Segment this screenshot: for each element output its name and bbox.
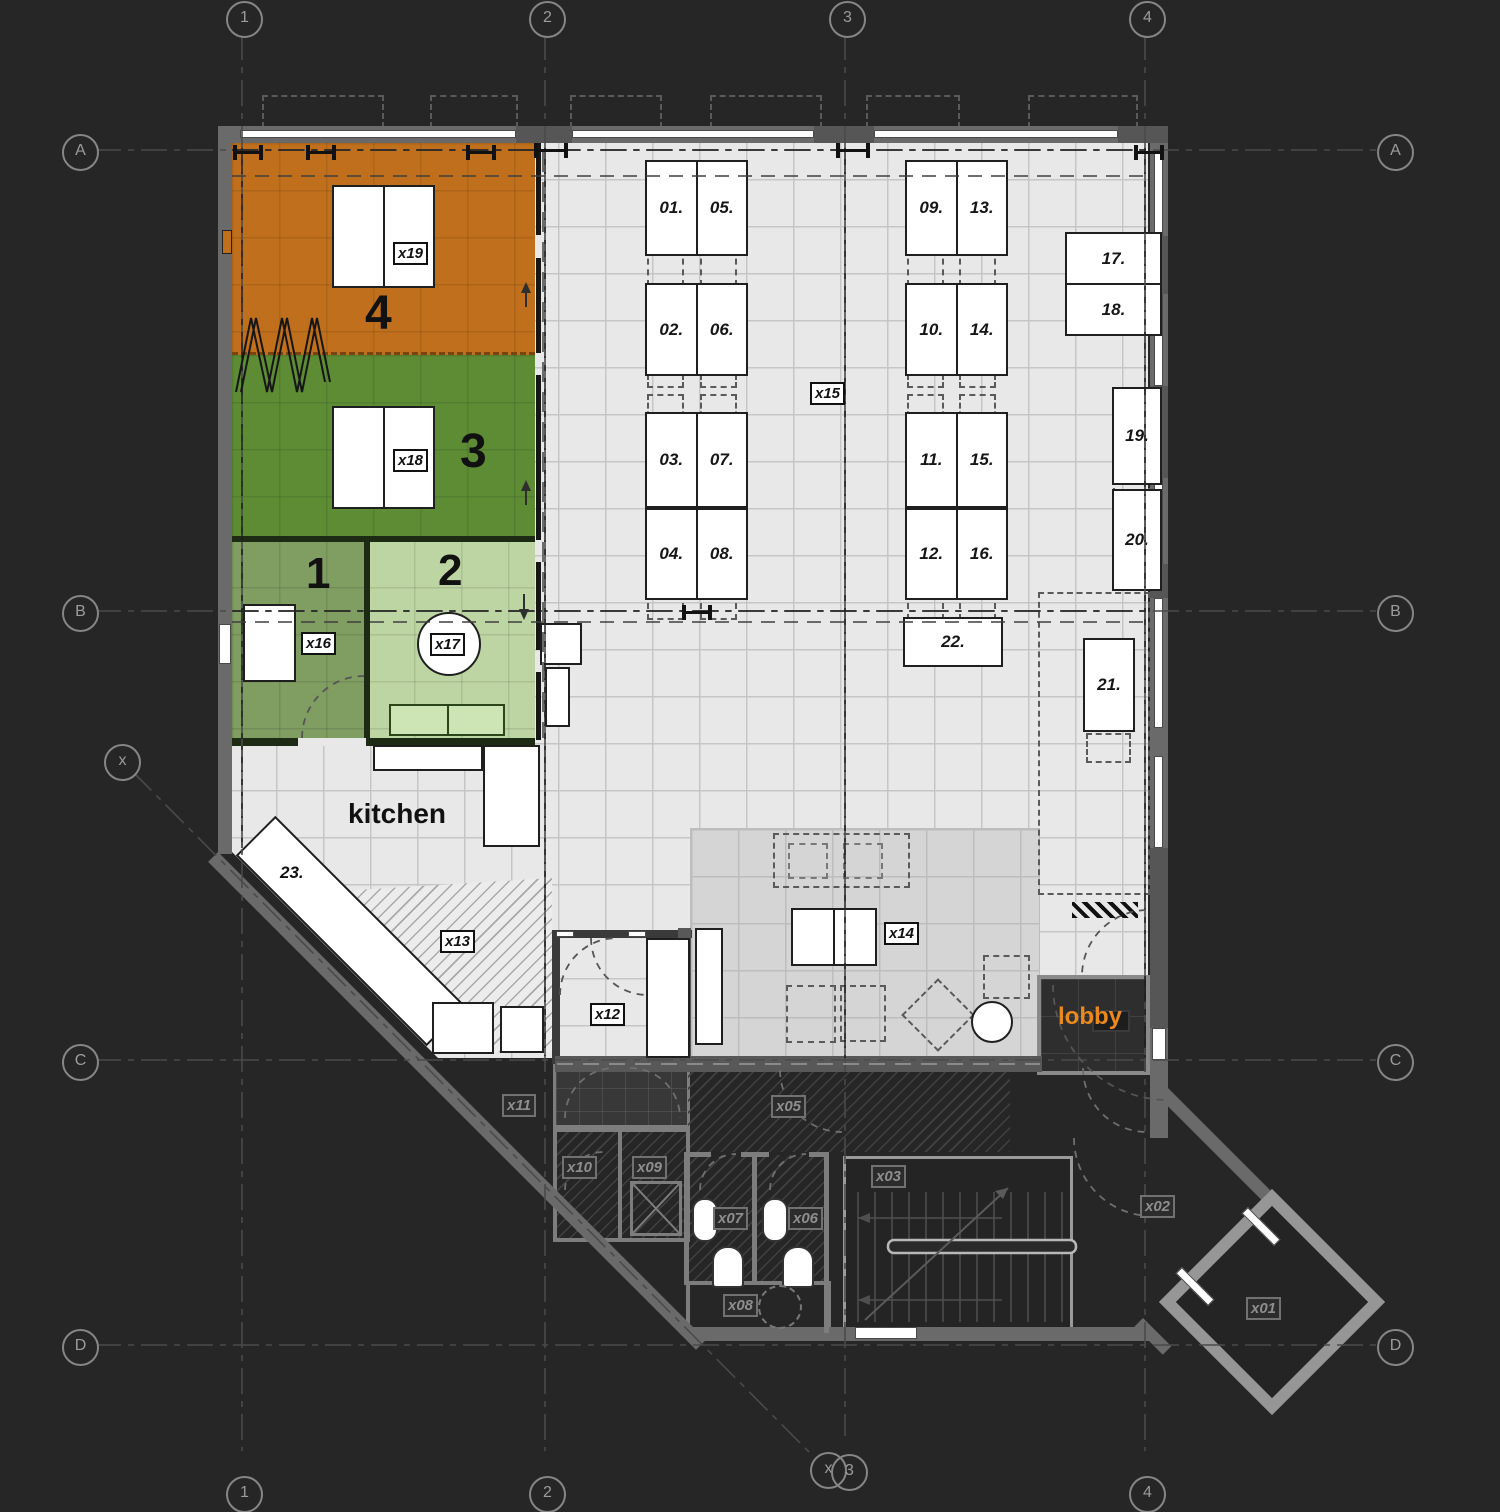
pier-top-a [516,126,572,143]
grid-row-d-left: D [62,1329,99,1366]
rooms-row-wall [232,536,535,542]
lounge-side-cabinet [695,928,723,1045]
stair-bottom-window [855,1327,917,1339]
planter-5 [866,95,960,128]
cabinet-a [540,623,582,665]
grid-col-1-bottom: 1 [226,1476,263,1512]
window-right-1 [1154,150,1163,236]
planter-1 [262,95,384,128]
sink [762,1198,788,1242]
grid-row-a-right: A [1377,134,1414,171]
lounge-pouf [971,1001,1013,1043]
grid-aux-x-left: x [104,744,141,781]
grid-row-c-right: C [1377,1044,1414,1081]
stall-top-seg2 [741,1152,769,1157]
mullion-mark [1134,145,1164,160]
room1-2-divider [364,540,370,742]
planter-2 [430,95,518,128]
window-right-5 [1154,756,1163,848]
planter-4 [710,95,822,128]
shaft-x09 [630,1181,682,1236]
room-1-number: 1 [306,552,330,596]
window-top-3 [874,130,1118,138]
tag-x19: x19 [393,242,428,265]
desk-block-04-08: 04.08. [645,508,748,600]
left-wall-orange-tab [222,230,232,254]
room-4-3-divider [232,352,535,355]
desk-21: 21. [1083,638,1135,732]
tag-x08: x08 [723,1294,758,1317]
desk-block-01-05: 01.05. [645,160,748,256]
kitchen-counter-v [483,745,540,847]
desk-18: 18. [1067,283,1160,334]
tag-x18: x18 [393,449,428,472]
lounge-armchair-1 [786,985,836,1043]
floor-plan: 01.05. 02.06. 03.07. 04.08. 09.13. 10.14… [0,0,1500,1512]
grid-col-2-bottom: 2 [529,1476,566,1512]
desk-22: 22. [903,617,1003,667]
desk-19: 19. [1112,387,1162,485]
window-right-lobby [1152,1028,1166,1060]
tag-x17: x17 [430,633,465,656]
glass-wall-seg3 [536,375,541,540]
room-2-number: 2 [438,549,462,593]
kitchen-counter-h [373,745,483,771]
kitchen-island-b [500,1006,544,1053]
toilet [712,1246,744,1288]
desk-08: 08. [696,510,747,598]
grid-row-c-left: C [62,1044,99,1081]
x12-door-jamb-2 [628,931,646,937]
room1-desk [243,604,296,682]
mullion-mark [233,145,263,160]
coffee-table [791,908,877,966]
lounge-sofa-seat-2 [843,843,883,879]
grid-col-3-top: 3 [829,1,866,38]
room-4-number: 4 [365,290,392,338]
pier-right-4 [1150,848,1168,1028]
x08-floor-drain [758,1285,802,1329]
desk-15: 15. [956,414,1007,506]
tag-x05: x05 [771,1095,806,1118]
desk-block-09-13: 09.13. [905,160,1008,256]
desk-11: 11. [907,414,956,506]
x10-x09-divider [618,1128,622,1242]
tag-x03: x03 [871,1165,906,1188]
stall-top-seg1 [689,1152,711,1157]
window-top-2 [572,130,814,138]
counter-23-label: 23. [280,864,304,881]
x12-left-wall [552,930,560,1064]
desk-09: 09. [907,162,956,254]
mullion-mark [836,143,870,158]
desk-block-11-15: 11.15. [905,412,1008,508]
grid-col-3-bottom: 3 [831,1454,868,1491]
stall-wall-right [824,1152,829,1333]
window-top-1 [240,130,516,138]
desk-16: 16. [956,510,1007,598]
tag-x14: x14 [884,922,919,945]
pier-top-b [814,126,874,143]
tag-x09: x09 [632,1156,667,1179]
kitchen-island-a [432,1002,494,1054]
lounge-sofa-seat-1 [788,843,828,879]
x12-cabinet [646,938,690,1058]
desk-13: 13. [956,162,1007,254]
desk-04: 04. [647,510,696,598]
tag-x12: x12 [590,1003,625,1026]
mullion-mark [466,145,496,160]
desk-20: 20. [1112,489,1162,591]
under-lounge-wall [555,1056,1042,1072]
window-right-4 [1154,598,1163,728]
tag-x13: x13 [440,930,475,953]
room-3-number: 3 [460,428,487,476]
mullion-mark [306,145,336,160]
bath-corridor-x05 [688,1066,1010,1152]
desk-12: 12. [907,510,956,598]
tag-x11: x11 [502,1094,536,1117]
room1-door-opening [298,738,366,746]
cabinet-b [545,667,570,727]
tag-x02: x02 [1140,1195,1175,1218]
desk-05: 05. [696,162,747,254]
bottom-wall [690,1327,1150,1341]
desk-block-10-14: 10.14. [905,283,1008,376]
glass-wall-seg5 [536,672,541,740]
tag-x01: x01 [1246,1297,1281,1320]
lounge-armchair-2 [840,985,886,1042]
grid-row-b-right: B [1377,595,1414,632]
entry-mat [1072,902,1138,918]
toilet [782,1246,814,1288]
desk-block-12-16: 12.16. [905,508,1008,600]
mullion-mark [682,605,712,620]
stall-wall-left [684,1152,689,1285]
glass-wall-seg2 [536,258,541,353]
desk-block-02-06: 02.06. [645,283,748,376]
tag-x16: x16 [301,632,336,655]
lounge-side-table [983,955,1030,999]
tag-x06: x06 [788,1207,823,1230]
window-left-room1 [219,624,231,664]
tag-x10: x10 [562,1156,597,1179]
stall-top-seg3 [809,1152,824,1157]
mullion-mark [534,143,568,158]
room2-sofa-divider [447,706,449,734]
grid-row-b-left: B [62,595,99,632]
grid-col-1-top: 1 [226,1,263,38]
pier-top-c [1118,126,1168,143]
desk-10: 10. [907,285,956,374]
x12-door-jamb-1 [556,931,574,937]
tag-x07: x07 [713,1207,748,1230]
table-x19 [332,185,435,288]
desk-07: 07. [696,414,747,506]
grid-row-d-right: D [1377,1329,1414,1366]
desk-block-03-07: 03.07. [645,412,748,508]
desk-03: 03. [647,414,696,506]
grid-col-4-top: 4 [1129,1,1166,38]
chair [1086,733,1131,763]
desk-17: 17. [1067,234,1160,283]
planter-3 [570,95,662,128]
desk-block-17-18: 17.18. [1065,232,1162,336]
desk-14: 14. [956,285,1007,374]
planter-6 [1028,95,1138,128]
desk-06: 06. [696,285,747,374]
grid-col-4-bottom: 4 [1129,1476,1166,1512]
grid-col-2-top: 2 [529,1,566,38]
desk-01: 01. [647,162,696,254]
elevator-corridor-wall [1153,1082,1273,1202]
grid-row-a-left: A [62,134,99,171]
kitchen-label: kitchen [348,800,446,828]
stall-wall-mid [752,1152,757,1285]
lobby-label: lobby [1058,1005,1122,1029]
desk-02: 02. [647,285,696,374]
tag-x15: x15 [810,382,845,405]
